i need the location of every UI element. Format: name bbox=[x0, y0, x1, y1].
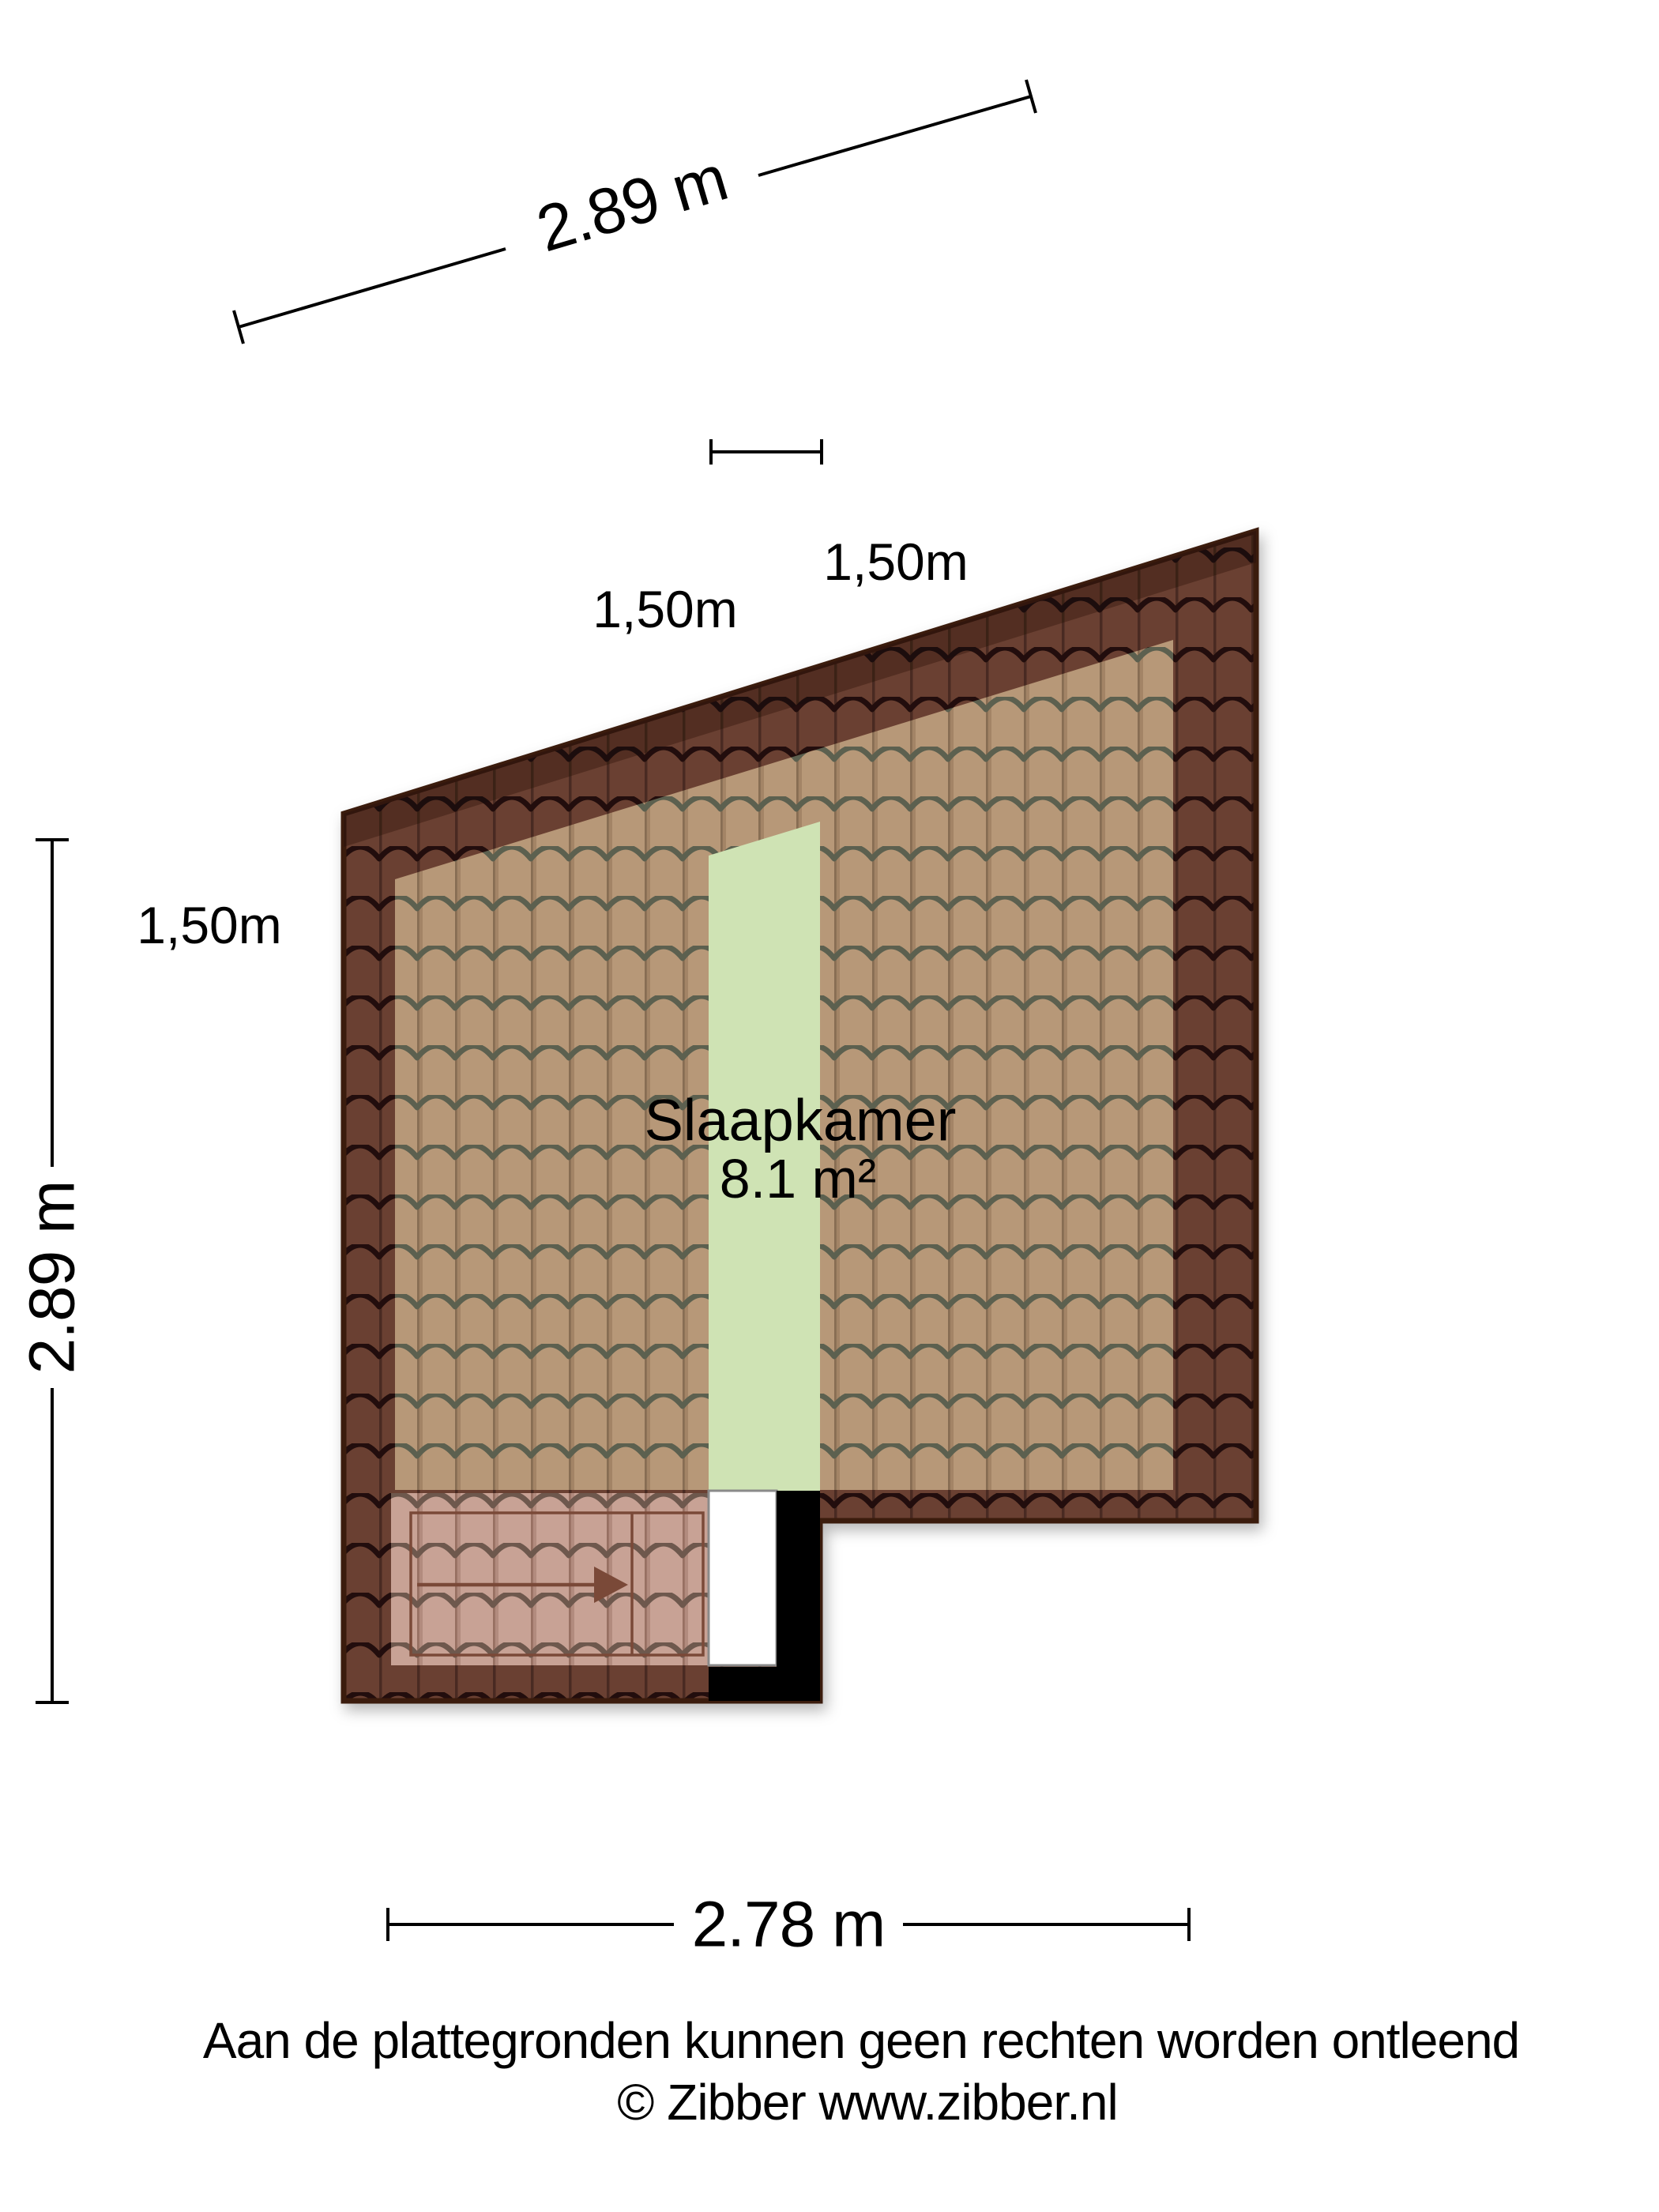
room-name-label: Slaapkamer bbox=[645, 1088, 957, 1153]
dimension-top: 2.89 m bbox=[234, 80, 1036, 344]
stair-void bbox=[709, 1491, 777, 1665]
floorplan-page: Slaapkamer 8.1 m² 2.89 m 1,50m 1,50m 1,5… bbox=[0, 0, 1659, 2212]
dimension-bottom-label: 2.78 m bbox=[692, 1889, 886, 1961]
footer-copyright: © Zibber www.zibber.nl bbox=[617, 2074, 1117, 2131]
height-mark-side: 1,50m bbox=[137, 896, 281, 954]
footer-disclaimer: Aan de plattegronden kunnen geen rechten… bbox=[203, 2012, 1519, 2069]
dimension-left-label: 2.89 m bbox=[17, 1181, 88, 1375]
height-mark-line bbox=[711, 439, 822, 465]
dimension-bottom: 2.78 m bbox=[388, 1889, 1189, 1961]
stair-overlay bbox=[391, 1493, 709, 1665]
dimension-top-label: 2.89 m bbox=[529, 142, 735, 266]
height-mark-top-right: 1,50m bbox=[823, 532, 968, 591]
height-mark-top-left: 1,50m bbox=[592, 580, 737, 638]
room-area-label: 8.1 m² bbox=[720, 1148, 876, 1209]
floorplan-canvas: Slaapkamer 8.1 m² 2.89 m 1,50m 1,50m 1,5… bbox=[0, 0, 1659, 2212]
dimension-left: 2.89 m bbox=[17, 840, 88, 1702]
